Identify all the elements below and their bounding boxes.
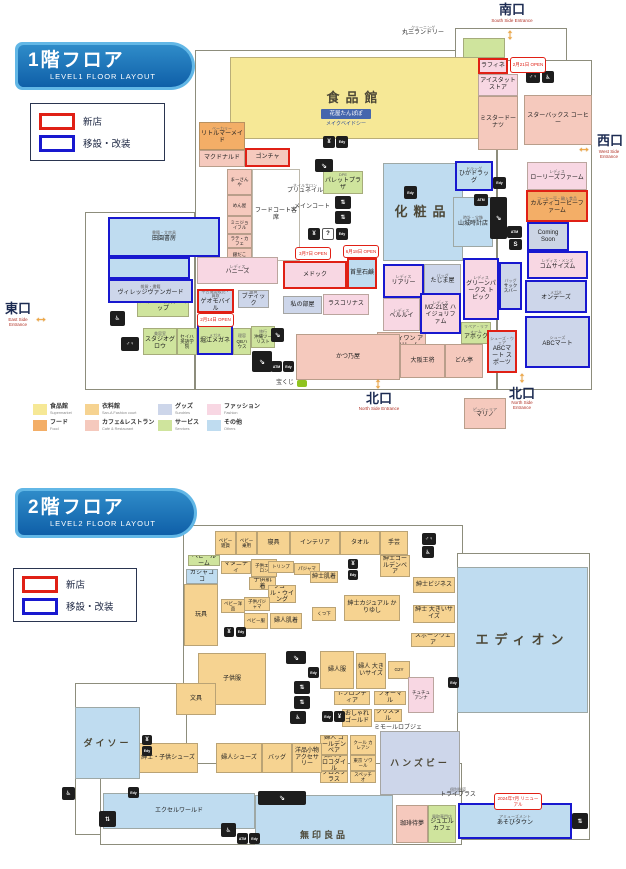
map-shop: 首里石鹸 bbox=[347, 258, 377, 289]
atm-icon: ATM bbox=[474, 194, 488, 206]
shop-name-label: ミスタードーナツ bbox=[480, 116, 516, 130]
map-shop: ピッツェリアマリノ bbox=[464, 398, 506, 429]
map-shop: かつ乃屋 bbox=[296, 334, 400, 380]
map-shop: レディスベルルイ bbox=[383, 298, 420, 331]
map-shop: 珈琲待夢 bbox=[396, 805, 428, 843]
shop-name-label: ABCマート スポーツ bbox=[490, 346, 514, 367]
legend-new-swatch bbox=[39, 113, 75, 130]
map-shop: バッグ bbox=[262, 743, 292, 773]
shop-name-label: マクドナルド bbox=[204, 155, 240, 162]
shop-name-label: ゴンチャ bbox=[256, 154, 280, 161]
floor-banner-inner: 1階フロアLEVEL1 FLOOR LAYOUT bbox=[18, 45, 192, 87]
floor-title: 1階フロア bbox=[28, 51, 192, 70]
shop-name-label: ハンズビー bbox=[390, 758, 450, 768]
floor-guide-page: 1階フロアLEVEL1 FLOOR LAYOUT新店移設・改装食品館ベーカリーリ… bbox=[0, 0, 626, 869]
shop-name-label: ベビールーム bbox=[190, 555, 218, 566]
cash-icon: ¥ bbox=[224, 627, 234, 637]
map-text-label: ネイルサロンプリュネイル bbox=[284, 181, 326, 198]
legend-moved-label: 移設・改装 bbox=[83, 136, 131, 150]
map-shop: ラスコリナス bbox=[323, 294, 369, 315]
entrance-arrow-icon: ↔ bbox=[32, 310, 50, 324]
edy-charge-icon: Edy bbox=[404, 186, 417, 199]
map-shop: くつ下 bbox=[312, 607, 336, 621]
shop-name-label: 寝具 bbox=[267, 540, 279, 547]
shop-name-label: QBハウス bbox=[235, 339, 249, 349]
map-shop: 書籍・文房具田園書房 bbox=[108, 217, 220, 257]
shop-name-label: ジュエルカフェ bbox=[430, 819, 454, 833]
map-shop: 寝具 bbox=[257, 531, 290, 555]
legend-new-label: 新店 bbox=[66, 577, 85, 591]
shop-name-label: コムサイズム bbox=[540, 264, 576, 271]
legend-moved-swatch bbox=[22, 598, 58, 615]
shop-name-label: 婦人服 bbox=[328, 667, 346, 674]
map-shop: スポーツウェア bbox=[411, 633, 455, 647]
map-shop: 文具 bbox=[176, 683, 216, 715]
map-shop: レディスローリーズファーム bbox=[527, 162, 587, 190]
map-shop: シューズABCマート bbox=[525, 316, 590, 368]
entrance-arrow-icon: ↕ bbox=[370, 376, 386, 392]
map-shop: ミスタードーナツ bbox=[478, 96, 518, 150]
edy-charge-icon: Edy bbox=[308, 667, 319, 678]
shop-name-label: 紳士肌着 bbox=[312, 574, 336, 581]
shop-name-label: 首里石鹸 bbox=[350, 270, 374, 277]
shop-name-label: スターバックス コーヒー bbox=[526, 113, 590, 127]
map-shop: ワコール・ウイング bbox=[268, 585, 296, 603]
legend-new-swatch bbox=[22, 576, 58, 593]
map-text-label: 花屋たんぽぽ bbox=[321, 109, 371, 119]
map-shop: クロスプラス bbox=[320, 771, 348, 783]
shop-name-label: ガシャココ bbox=[188, 570, 216, 584]
map-shop: ベーカリーリトルマーメイド bbox=[199, 122, 245, 150]
map-shop: 雑貨・書籍ヴィレッジヴァンガード bbox=[108, 279, 193, 303]
map-shop: ベビールーム bbox=[188, 555, 220, 566]
map-shop bbox=[108, 257, 190, 279]
shop-name-label: タオル bbox=[351, 540, 369, 547]
shop-name-label: おしゃれ ゴールド bbox=[344, 711, 370, 725]
map-shop: マタニティ bbox=[221, 561, 251, 574]
shop-name-label: エクセルワールド bbox=[155, 808, 203, 815]
map-legend: 新店移設・改装 bbox=[13, 568, 137, 622]
shop-name-label: 化粧品 bbox=[394, 205, 451, 220]
category-swatch bbox=[207, 420, 221, 431]
open-date-badge: 6月18日 OPEN bbox=[343, 245, 379, 258]
shop-name-label: 婦人 大きいサイズ bbox=[358, 664, 384, 678]
map-shop: ラテ・カフェ bbox=[227, 234, 252, 248]
shop-name-label: 婦人 クロコダイル bbox=[322, 755, 346, 771]
shop-name-label: ハニーズ bbox=[226, 269, 250, 276]
shop-name-label: 子供パジャマ bbox=[246, 599, 268, 609]
floor-subtitle: LEVEL2 FLOOR LAYOUT bbox=[50, 519, 194, 528]
floor2-map: 2階フロアLEVEL2 FLOOR LAYOUT新店移設・改装ベビー雑貨ベビー乗… bbox=[0, 485, 626, 869]
entrance-name-english: East Side Entrance bbox=[0, 318, 36, 332]
map-shop: インテリア bbox=[290, 531, 340, 555]
lottery-booth-icon bbox=[297, 380, 307, 387]
map-shop: バッグサックスバー bbox=[499, 262, 522, 310]
category-label-en: San-A Fashion court bbox=[102, 412, 164, 418]
wheelchair-icon: ♿ bbox=[62, 787, 75, 800]
shop-name-label: 婦人肌着 bbox=[274, 618, 298, 625]
category-label-en: Fashion bbox=[224, 412, 286, 418]
shop-name-label: スタジオグロウ bbox=[145, 337, 175, 351]
shop-category-label: 中古携帯販売・買取 bbox=[200, 290, 231, 299]
shop-name-label: 文具 bbox=[190, 696, 202, 703]
edy-charge-icon: Edy bbox=[322, 711, 333, 722]
map-shop: セイハ英語学院 bbox=[177, 328, 197, 355]
map-shop: トリンプ bbox=[268, 561, 294, 573]
shop-name-label: マタニティ bbox=[223, 561, 249, 574]
cash-icon: ¥ bbox=[142, 735, 152, 745]
floor-title: 2階フロア bbox=[28, 498, 194, 517]
map-text-main: プリュネイル bbox=[287, 188, 323, 195]
entrance-name: 東口 bbox=[2, 302, 34, 318]
edy-charge-icon: Edy bbox=[283, 361, 294, 372]
shop-name-label: 玩具 bbox=[195, 612, 207, 619]
map-shop: 美容室スタジオグロウ bbox=[143, 328, 177, 355]
map-text-label: 個別指導トライプラス bbox=[434, 785, 482, 802]
legend-row: 新店 bbox=[39, 113, 156, 130]
map-text-label: 宝くじ bbox=[272, 378, 298, 388]
map-shop: ゴンチャ bbox=[245, 148, 290, 167]
map-shop: マクドナルド bbox=[199, 150, 245, 167]
floor-banner: 1階フロアLEVEL1 FLOOR LAYOUT bbox=[15, 42, 195, 90]
map-shop: ベビー雑貨 bbox=[215, 531, 236, 555]
map-shop: まーさんや bbox=[227, 169, 252, 195]
shop-name-label: 田園書房 bbox=[152, 236, 176, 243]
shop-name-label: ラフィネ bbox=[481, 63, 505, 70]
map-shop: スターバックス コーヒー bbox=[524, 95, 592, 145]
map-text-label: メイクベイドシー bbox=[319, 120, 373, 129]
shop-name-label: フォーマル bbox=[376, 691, 404, 705]
elevator-icon: ⇅ bbox=[572, 813, 588, 829]
map-text-label: ミモールロブジェ bbox=[372, 724, 424, 733]
map-shop: 紳士ビジネス bbox=[413, 577, 455, 593]
map-shop: 雑貨ブティック bbox=[238, 290, 269, 308]
map-shop: 婦人シューズ bbox=[216, 743, 262, 773]
category-label-en: Others bbox=[224, 428, 286, 434]
map-shop bbox=[463, 38, 505, 58]
shop-name-label: 私の部屋 bbox=[290, 302, 314, 309]
shop-name-label: ラスコリナス bbox=[328, 301, 364, 308]
shop-name-label: 子供服 bbox=[223, 676, 241, 683]
category-swatch bbox=[158, 404, 172, 415]
map-shop: DPEパレットプラザ bbox=[323, 171, 363, 194]
shop-name-label: ヴィレッジヴァンガード bbox=[117, 290, 183, 297]
map-text-main: 宝くじ bbox=[276, 380, 294, 387]
escalator-icon: ⇘ bbox=[490, 197, 507, 239]
map-shop: 子供パジャマ bbox=[244, 597, 270, 611]
map-shop: スペッチオ bbox=[350, 771, 376, 783]
shop-name-label: 山城時計店 bbox=[458, 221, 488, 228]
shop-name-label: マリノ bbox=[476, 412, 494, 419]
escalator-icon: ⇘ bbox=[315, 159, 333, 172]
shop-name-label: ABCマート bbox=[542, 341, 572, 348]
map-shop: Coming Soon bbox=[527, 222, 569, 251]
shop-name-label: チュチュ アンナ bbox=[410, 690, 432, 700]
shop-name-label: ダイソー bbox=[83, 738, 131, 748]
shop-name-label: 無印良品 bbox=[300, 830, 348, 840]
elevator-icon: ⇅ bbox=[294, 681, 310, 694]
shop-name-label: アボック bbox=[464, 334, 488, 341]
map-shop: G2Y bbox=[388, 661, 410, 679]
shop-name-label: オンデーズ bbox=[541, 295, 571, 302]
category-swatch bbox=[33, 420, 47, 431]
shop-name-label: パレットプラザ bbox=[325, 178, 361, 192]
shop-name-label: サックスバー bbox=[502, 283, 519, 293]
shop-name-label: 食品館 bbox=[326, 91, 383, 106]
map-shop: 紳士カジュアル かりゆし bbox=[344, 595, 400, 621]
map-shop: ミニジョイフル bbox=[227, 216, 252, 234]
map-shop: ラフィネ bbox=[478, 58, 508, 74]
map-shop: 婦人 クロコダイル bbox=[320, 755, 348, 771]
map-shop: おしゃれ ゴールド bbox=[342, 709, 372, 727]
legend-new-label: 新店 bbox=[83, 114, 102, 128]
shop-name-label: トリンプ bbox=[272, 564, 290, 569]
shop-name-label: G2Y bbox=[394, 667, 403, 672]
map-shop: どん亭 bbox=[445, 344, 483, 378]
edy-charge-icon: Edy bbox=[249, 833, 260, 844]
shop-name-label: 手芸 bbox=[388, 540, 400, 547]
map-shop: メガネ堀江メガネ bbox=[197, 324, 233, 355]
category-swatch bbox=[33, 404, 47, 415]
escalator-icon: ⇘ bbox=[286, 651, 306, 664]
map-text-main: 丸三ランドリー bbox=[402, 30, 444, 37]
category-swatch bbox=[85, 404, 99, 415]
map-shop: 婦人服 bbox=[320, 651, 354, 689]
map-shop: 手芸 bbox=[380, 531, 408, 555]
shop-name-label: カルディコーヒーファーム bbox=[529, 201, 585, 215]
wheelchair-icon: ♿ bbox=[422, 546, 434, 558]
shop-name-label: 堀江メガネ bbox=[200, 338, 230, 345]
escalator-icon: ⇘ bbox=[271, 328, 284, 342]
shop-name-label: クール カレアン bbox=[352, 740, 374, 750]
category-swatch bbox=[85, 420, 99, 431]
edy-charge-icon: Edy bbox=[493, 177, 506, 189]
cash-icon: ¥ bbox=[334, 711, 345, 722]
shop-name-label: ひがドラッグ bbox=[458, 171, 490, 185]
cash-icon: ¥ bbox=[323, 136, 335, 148]
shop-name-label: まーさんや bbox=[229, 177, 250, 187]
map-shop: 化粧品 bbox=[383, 163, 463, 261]
edy-charge-icon: Edy bbox=[448, 677, 459, 688]
open-date-badge: 2024年7月 リニューアル bbox=[494, 793, 542, 810]
shop-name-label: ベルルイ bbox=[389, 313, 413, 320]
map-shop: 婦人 ゴールデンベア bbox=[320, 735, 348, 755]
atm-icon: ATM bbox=[271, 361, 282, 372]
map-shop: クリスタル bbox=[374, 709, 402, 722]
shop-name-label: セイハ英語学院 bbox=[179, 334, 195, 350]
entrance-name: 西口 bbox=[594, 134, 626, 150]
edy-charge-icon: Edy bbox=[336, 228, 348, 240]
shop-name-label: 珈琲待夢 bbox=[400, 821, 424, 828]
category-swatch bbox=[158, 420, 172, 431]
entrance-arrow-icon: ↕ bbox=[502, 27, 518, 43]
legend-row: 移設・改装 bbox=[22, 598, 128, 615]
open-date-badge: 2月21日 OPEN bbox=[510, 57, 546, 73]
shop-name-label: バッグ bbox=[268, 755, 286, 762]
open-date-badge: 2月14日 OPEN bbox=[197, 313, 234, 327]
shop-name-label: ワコール・ウイング bbox=[270, 585, 294, 603]
shop-category-label: シューズ・ウェア bbox=[490, 337, 514, 346]
elevator-icon: ⇅ bbox=[335, 211, 351, 224]
shop-name-label: スペッチオ bbox=[352, 772, 374, 782]
map-shop: フォーマル bbox=[374, 691, 406, 705]
map-text-main: メイクベイドシー bbox=[326, 122, 366, 128]
map-shop: レディスリアリー bbox=[383, 264, 424, 298]
elevator-icon: ⇅ bbox=[99, 811, 116, 827]
floor-banner: 2階フロアLEVEL2 FLOOR LAYOUT bbox=[15, 488, 197, 538]
shop-name-label: クリスタル bbox=[376, 709, 400, 722]
category-label-jp: フード bbox=[50, 420, 110, 428]
map-shop: 理容QBハウス bbox=[233, 328, 251, 355]
map-shop: チュチュ アンナ bbox=[408, 677, 434, 713]
atm-icon: ATM bbox=[507, 226, 522, 238]
map-shop: メドック bbox=[283, 261, 347, 289]
map-shop: タオル bbox=[340, 531, 380, 555]
shop-name-label: ベビー服 bbox=[247, 618, 265, 623]
shop-category-label: リペア・リフォーム bbox=[463, 325, 489, 334]
map-shop: 玩具 bbox=[184, 584, 218, 646]
map-shop: めん屋 bbox=[227, 195, 252, 216]
shop-name-label: かつ乃屋 bbox=[336, 354, 360, 361]
shop-name-label: スポーツウェア bbox=[413, 633, 453, 647]
shop-name-label: ブティック bbox=[240, 294, 267, 308]
map-shop: レディス・メンズコムサイズム bbox=[527, 251, 588, 279]
edy-charge-icon: Edy bbox=[236, 627, 246, 637]
shop-name-label: どん亭 bbox=[455, 358, 473, 365]
shop-name-label: くつ下 bbox=[317, 611, 331, 616]
map-shop: 紳士ゴールデンベア bbox=[380, 555, 410, 577]
shop-name-label: 紳士カジュアル かりゆし bbox=[346, 601, 398, 615]
shop-name-label: エディオン bbox=[475, 633, 569, 648]
map-shop: 私の部屋 bbox=[283, 296, 322, 314]
shop-name-label: インテリア bbox=[300, 540, 330, 547]
map-shop: 中古携帯販売・買取ゲオモバイル bbox=[197, 289, 234, 313]
atm-icon: ATM bbox=[237, 833, 248, 844]
floor-banner-inner: 2階フロアLEVEL2 FLOOR LAYOUT bbox=[18, 491, 194, 535]
map-shop: ドラッグひがドラッグ bbox=[455, 161, 493, 191]
map-shop: アイスタットストア bbox=[478, 74, 518, 96]
edy-charge-icon: Edy bbox=[336, 136, 348, 148]
shop-name-label: Coming Soon bbox=[530, 230, 566, 244]
shop-name-label: 洋品小物 アクセサリー bbox=[294, 748, 320, 769]
map-shop: 婦人 大きいサイズ bbox=[356, 653, 386, 689]
map-text-main: メインコート bbox=[294, 204, 330, 211]
map-shop: 大阪王将 bbox=[400, 344, 445, 378]
map-shop: 紳士 大きいサイズ bbox=[413, 605, 455, 623]
shop-name-label: ベビー乗用 bbox=[238, 538, 255, 548]
map-shop: レディスMZ-21区 ハイジョリファム bbox=[420, 293, 461, 334]
map-shop: バッグたじま屋 bbox=[424, 264, 461, 295]
shop-name-label: アイスタットストア bbox=[480, 78, 516, 92]
map-text-label: メインコート bbox=[290, 202, 334, 212]
map-shop: ダイソー bbox=[75, 707, 140, 779]
map-text-main: トライプラス bbox=[440, 792, 476, 799]
map-legend: 新店移設・改装 bbox=[30, 103, 165, 161]
category-label-en: Café & Restaurant bbox=[102, 428, 164, 434]
category-swatch bbox=[207, 404, 221, 415]
shop-name-label: ローリーズファーム bbox=[530, 175, 584, 182]
edy-charge-icon: Edy bbox=[348, 570, 358, 580]
map-shop: ベビー乗用 bbox=[236, 531, 257, 555]
entrance-name: 南口 bbox=[492, 3, 532, 19]
shop-name-label: メドック bbox=[303, 272, 327, 279]
map-shop: 東京 ソワール bbox=[350, 755, 376, 771]
map-shop: ベビー服 bbox=[244, 613, 268, 629]
map-shop: T-フロンティア bbox=[334, 691, 370, 705]
shop-name-label: MZ-21区 ハイジョリファム bbox=[423, 305, 458, 326]
shop-name-label: あそびタウン bbox=[497, 820, 533, 827]
wheelchair-icon: ♿ bbox=[221, 823, 236, 837]
shop-name-label: ミニジョイフル bbox=[229, 220, 250, 230]
shop-name-label: めん屋 bbox=[233, 203, 247, 208]
shop-name-label: 沖縄ツーリスト bbox=[253, 334, 273, 344]
service-counter-icon: S bbox=[509, 239, 522, 250]
shop-name-label: 大阪王将 bbox=[410, 358, 434, 365]
shop-name-label: 紳士 大きいサイズ bbox=[415, 607, 453, 621]
shop-name-label: 紳士ビジネス bbox=[416, 582, 452, 589]
map-text-label: クリーニング丸三ランドリー bbox=[390, 22, 456, 40]
shop-name-label: グリーンパークス トピック bbox=[466, 281, 496, 302]
shop-name-label: 東京 ソワール bbox=[352, 758, 374, 768]
shop-name-label: 紳士ゴールデンベア bbox=[382, 556, 408, 577]
entrance-name-english: West Side Entrance bbox=[592, 150, 626, 164]
wheelchair-icon: ♿ bbox=[110, 311, 125, 326]
map-shop: 買取専門店ジュエルカフェ bbox=[428, 805, 456, 843]
legend-moved-swatch bbox=[39, 135, 75, 152]
map-shop: レディスハニーズ bbox=[197, 257, 278, 284]
map-shop: ベビー洋品 bbox=[221, 599, 245, 613]
shop-name-label: リトルマーメイド bbox=[201, 131, 243, 145]
shop-name-label: ベビー雑貨 bbox=[217, 538, 234, 548]
shop-name-label: 婦人 ゴールデンベア bbox=[322, 735, 346, 755]
shop-name-label: ゲオモバイル bbox=[200, 299, 231, 313]
cash-icon: ¥ bbox=[348, 559, 358, 569]
edy-charge-icon: Edy bbox=[142, 746, 152, 756]
shop-name-label: 婦人シューズ bbox=[221, 755, 257, 762]
shop-name-label: リアリー bbox=[391, 280, 415, 287]
map-shop: シューズ・ウェアABCマート スポーツ bbox=[487, 330, 517, 373]
floor1-map: 1階フロアLEVEL1 FLOOR LAYOUT新店移設・改装食品館ベーカリーリ… bbox=[0, 0, 626, 475]
legend-moved-label: 移設・改装 bbox=[66, 599, 114, 613]
edy-charge-icon: Edy bbox=[128, 787, 139, 798]
map-shop: ガシャココ bbox=[186, 569, 218, 584]
map-shop: エディオン bbox=[457, 567, 588, 713]
map-shop: レディスグリーンパークス トピック bbox=[463, 258, 499, 320]
legend-row: 新店 bbox=[22, 576, 128, 593]
escalator-icon: ⇘ bbox=[252, 351, 272, 372]
escalator-icon: ⇘ bbox=[258, 791, 306, 805]
shop-name-label: ラテ・カフェ bbox=[229, 236, 250, 246]
shop-name-label: たじま屋 bbox=[430, 278, 454, 285]
shop-name-label: クロスプラス bbox=[322, 771, 346, 783]
restroom-icon: ♂♀ bbox=[121, 337, 139, 351]
map-shop: 紳士肌着 bbox=[310, 571, 338, 583]
entrance-arrow-icon: ↔ bbox=[575, 140, 593, 154]
map-shop: クール カレアン bbox=[350, 735, 376, 755]
floor-subtitle: LEVEL1 FLOOR LAYOUT bbox=[50, 72, 192, 81]
open-date-badge: 3月7日 OPEN bbox=[295, 247, 331, 260]
map-shop: 洋品小物 アクセサリー bbox=[292, 743, 322, 773]
map-shop: メガネオンデーズ bbox=[525, 280, 587, 313]
map-text-main: ミモールロブジェ bbox=[374, 725, 422, 732]
restroom-icon: ♂♀ bbox=[422, 533, 436, 545]
elevator-icon: ⇅ bbox=[294, 696, 310, 709]
shop-name-label: ベビー洋品 bbox=[223, 601, 243, 611]
shop-name-label: T-フロンティア bbox=[336, 691, 368, 705]
entrance-name-english: North Side Entrance bbox=[352, 407, 406, 415]
map-shop: 婦人肌着 bbox=[270, 613, 302, 629]
map-text-main: 花屋たんぽぽ bbox=[329, 111, 362, 117]
